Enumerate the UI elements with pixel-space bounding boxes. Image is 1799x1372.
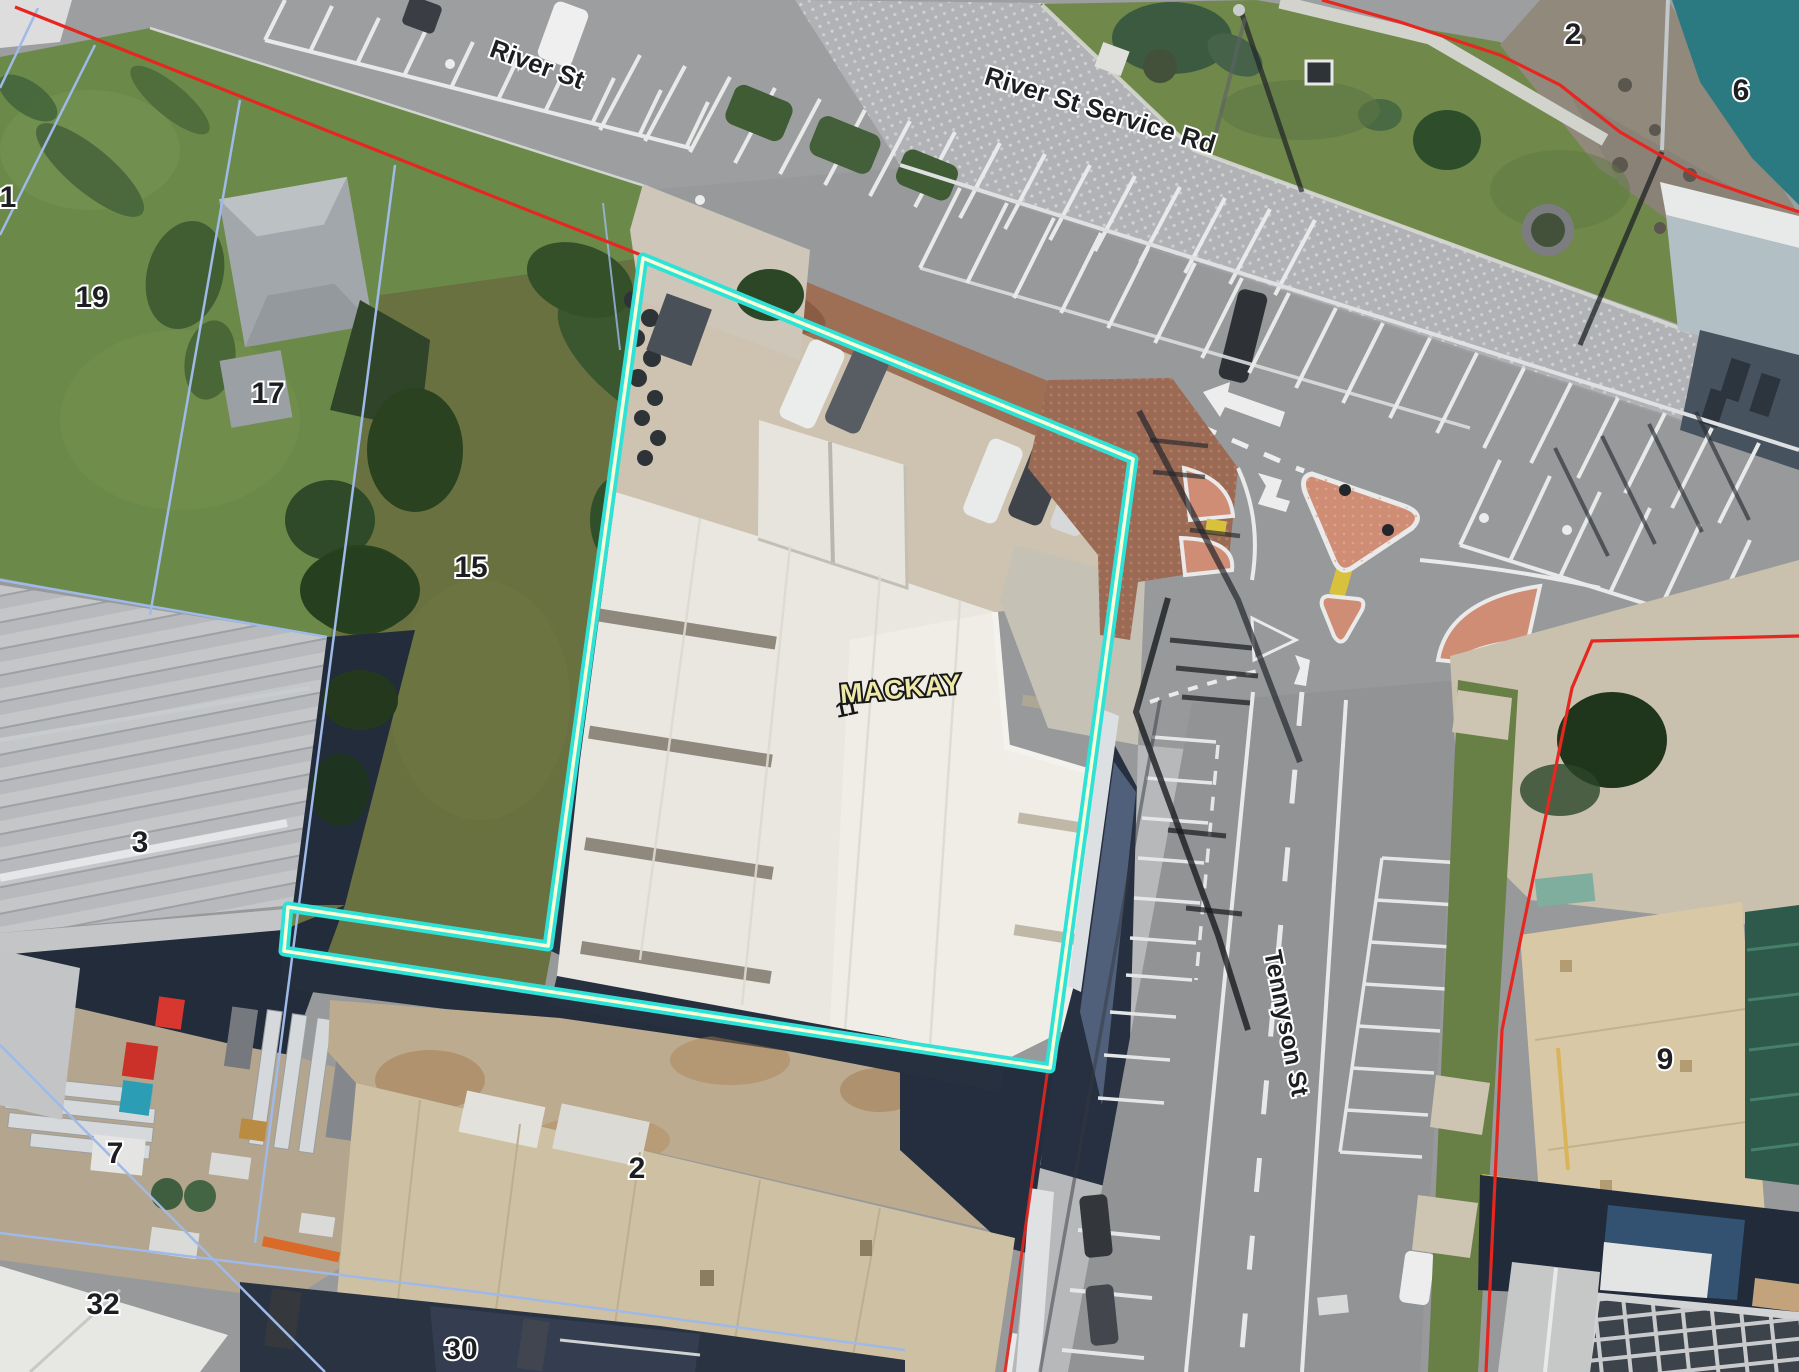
svg-text:6: 6 xyxy=(1733,74,1750,107)
svg-text:1: 1 xyxy=(0,181,16,214)
svg-text:9: 9 xyxy=(1657,1043,1674,1076)
svg-text:2: 2 xyxy=(629,1152,646,1185)
svg-text:3: 3 xyxy=(132,826,149,859)
svg-text:17: 17 xyxy=(251,377,284,410)
svg-text:2: 2 xyxy=(1565,18,1582,51)
svg-text:32: 32 xyxy=(86,1288,119,1321)
svg-text:7: 7 xyxy=(107,1137,124,1170)
svg-text:15: 15 xyxy=(454,551,487,584)
svg-text:19: 19 xyxy=(75,281,108,314)
svg-text:30: 30 xyxy=(444,1333,477,1366)
